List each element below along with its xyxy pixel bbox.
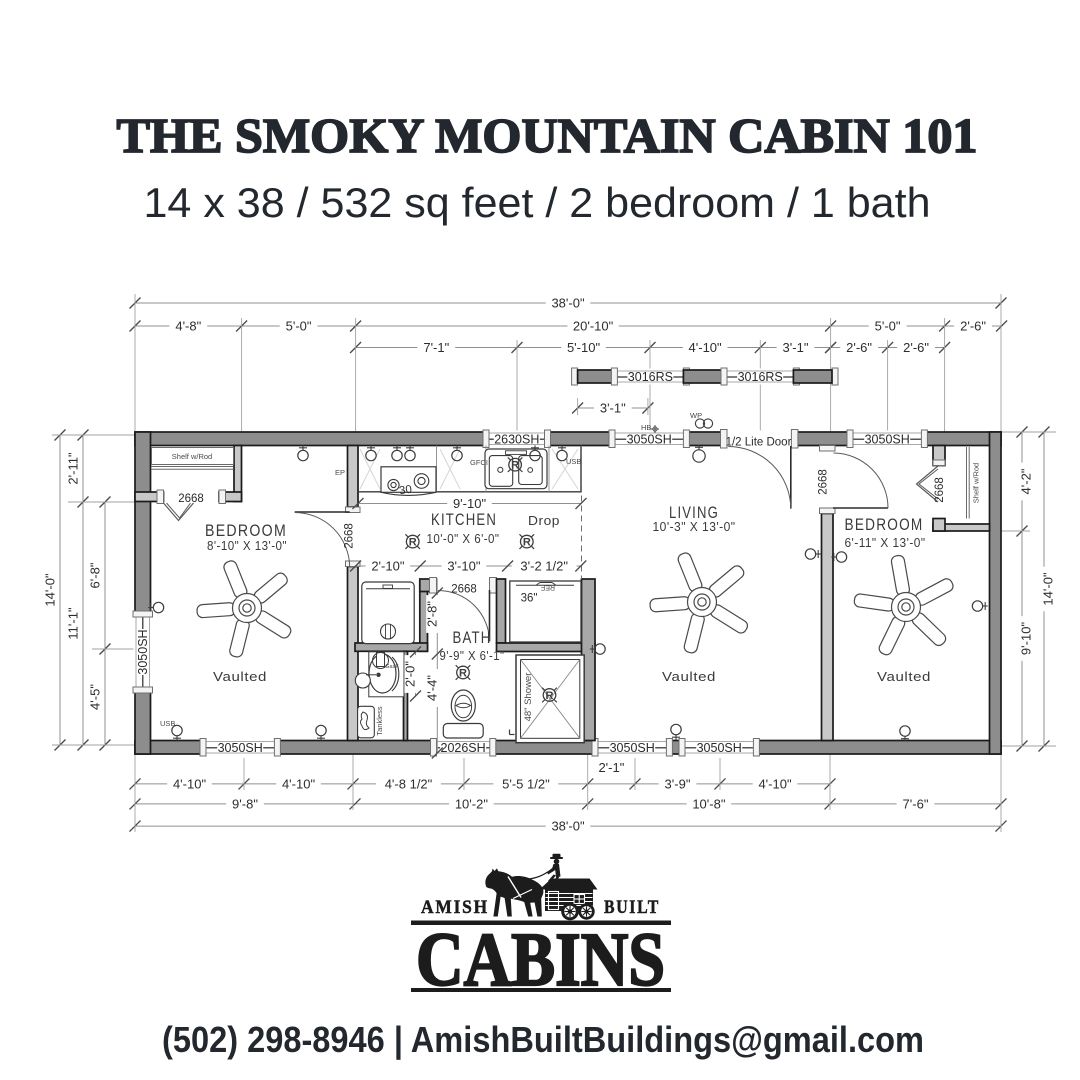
svg-text:4'-10": 4'-10" [173,776,207,791]
svg-text:AMISH: AMISH [421,897,489,918]
svg-text:R: R [459,668,467,680]
svg-text:9'-9" X 6'-1": 9'-9" X 6'-1" [440,648,505,663]
svg-text:11'-1": 11'-1" [66,607,81,640]
svg-text:REF: REF [541,584,555,591]
svg-text:10'-8": 10'-8" [692,796,726,811]
svg-text:4'-5": 4'-5" [88,684,103,710]
svg-text:BEDROOM: BEDROOM [845,516,924,534]
svg-text:5'-5 1/2": 5'-5 1/2" [502,776,550,791]
svg-text:3'-2 1/2": 3'-2 1/2" [520,559,568,574]
svg-text:8'-10" X 13'-0": 8'-10" X 13'-0" [207,538,287,553]
svg-text:3050SH: 3050SH [865,432,910,446]
svg-text:2'-11": 2'-11" [66,452,81,485]
svg-text:7'-6": 7'-6" [903,796,929,811]
svg-text:5'-10": 5'-10" [567,340,601,355]
svg-text:3050SH: 3050SH [136,629,150,674]
svg-text:2668: 2668 [818,469,830,495]
svg-text:4'-8": 4'-8" [175,319,201,334]
svg-text:Shelf w/Rod: Shelf w/Rod [972,463,981,503]
svg-text:Drop: Drop [528,513,560,528]
svg-text:Tankless: Tankless [375,706,384,735]
svg-text:14'-0": 14'-0" [43,573,58,607]
svg-text:10'-2": 10'-2" [455,796,489,811]
svg-text:2668: 2668 [344,523,356,549]
svg-text:7'-1": 7'-1" [423,340,449,355]
svg-text:R: R [409,537,417,549]
svg-text:3016RS: 3016RS [738,370,783,384]
svg-text:R: R [523,537,531,549]
svg-text:14 x 38 / 532 sq feet / 2 bedr: 14 x 38 / 532 sq feet / 2 bedroom / 1 ba… [144,179,931,226]
svg-text:48" Shower: 48" Shower [523,673,534,722]
svg-text:HB: HB [641,423,651,432]
svg-text:BATH: BATH [453,629,492,647]
svg-text:2'-6": 2'-6" [903,340,929,355]
svg-text:3'-1": 3'-1" [600,401,626,416]
svg-text:2668: 2668 [178,493,204,505]
svg-text:BUILT: BUILT [604,897,660,918]
svg-text:Shelf w/Rod: Shelf w/Rod [172,452,212,461]
svg-text:4'-10": 4'-10" [282,776,316,791]
svg-text:2668: 2668 [451,584,477,596]
svg-text:2630SH: 2630SH [494,432,539,446]
svg-text:Vaulted: Vaulted [213,669,267,684]
svg-text:3050SH: 3050SH [218,741,263,755]
svg-text:3'-9": 3'-9" [665,776,691,791]
svg-text:GFCI: GFCI [470,458,488,467]
svg-text:2'-10": 2'-10" [371,559,405,574]
svg-text:2668: 2668 [934,477,946,503]
svg-text:3050SH: 3050SH [610,741,655,755]
svg-text:20'-10": 20'-10" [573,319,614,334]
svg-text:10'-3" X 13'-0": 10'-3" X 13'-0" [653,519,736,534]
svg-text:4'-10": 4'-10" [689,340,723,355]
svg-text:36": 36" [521,593,538,605]
svg-text:THE SMOKY MOUNTAIN CABIN 101: THE SMOKY MOUNTAIN CABIN 101 [117,108,978,163]
svg-text:6'-11" X 13'-0": 6'-11" X 13'-0" [845,535,926,550]
svg-text:Vaulted: Vaulted [662,669,716,684]
svg-text:38'-0": 38'-0" [551,296,585,311]
svg-text:2'-1": 2'-1" [598,760,624,775]
svg-text:4'-8 1/2": 4'-8 1/2" [385,776,433,791]
svg-text:38'-0": 38'-0" [551,819,585,834]
svg-text:4'-10": 4'-10" [758,776,792,791]
svg-text:EP: EP [335,468,345,477]
svg-text:2'-8": 2'-8" [424,601,439,627]
svg-text:3'-1": 3'-1" [783,340,809,355]
svg-text:Vaulted: Vaulted [877,669,931,684]
svg-text:(502) 298-8946 | AmishBuiltBui: (502) 298-8946 | AmishBuiltBuildings@gma… [162,1019,924,1061]
svg-text:3'-10": 3'-10" [447,559,481,574]
svg-text:5'-0": 5'-0" [875,319,901,334]
svg-text:5'-0": 5'-0" [286,319,312,334]
svg-text:4'-2": 4'-2" [1019,468,1034,494]
svg-text:3016RS: 3016RS [628,370,673,384]
svg-text:14'-0": 14'-0" [1041,572,1056,606]
svg-text:9'-8": 9'-8" [232,796,258,811]
svg-text:3050SH: 3050SH [627,432,672,446]
svg-text:KITCHEN: KITCHEN [431,511,497,529]
svg-text:2026SH: 2026SH [441,741,486,755]
svg-text:2'-6": 2'-6" [846,340,872,355]
svg-text:USB: USB [566,457,581,466]
svg-text:2'-6": 2'-6" [960,319,986,334]
svg-text:4'-4": 4'-4" [424,675,439,701]
svg-text:9'-10": 9'-10" [453,496,487,511]
svg-text:3050SH: 3050SH [697,741,742,755]
svg-text:9'-10": 9'-10" [1019,622,1034,656]
svg-text:R: R [511,460,519,472]
svg-text:2'-0": 2'-0" [403,661,418,687]
svg-text:30: 30 [398,484,412,498]
svg-text:GasF: GasF [385,664,399,670]
svg-text:10'-0" X 6'-0": 10'-0" X 6'-0" [427,531,500,546]
svg-text:R: R [546,690,554,702]
svg-text:6'-8": 6'-8" [88,562,103,588]
svg-text:USB: USB [160,719,175,728]
